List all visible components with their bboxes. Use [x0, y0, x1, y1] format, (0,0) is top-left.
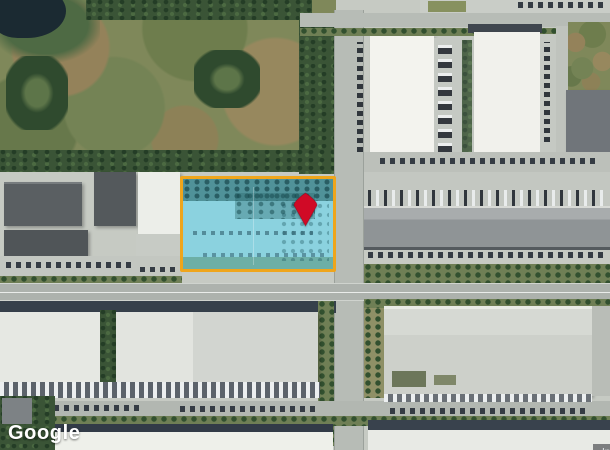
tree-clump	[6, 56, 68, 130]
loading-dock-trailers	[384, 394, 592, 402]
strip-warehouse-roof	[364, 206, 610, 250]
warehouse-roof	[370, 36, 434, 156]
docked-trucks-row	[368, 190, 604, 206]
roof-stain	[434, 375, 456, 385]
parked-cars-row	[390, 408, 590, 414]
parked-cars-column	[544, 42, 550, 142]
white-roof-building	[138, 172, 180, 234]
tree-column	[462, 40, 472, 154]
docked-trucks	[438, 44, 452, 152]
grass-verge	[364, 264, 610, 283]
parked-cars-row	[368, 252, 606, 258]
map-pin[interactable]	[292, 192, 319, 227]
satellite-map[interactable]: Google Imagery ©2025 Airbus, Maxar Techn…	[0, 0, 610, 450]
parked-cars-row	[518, 2, 608, 8]
warehouse-roof	[474, 32, 540, 156]
small-gray-roof	[2, 398, 32, 424]
gray-roof-building	[566, 90, 610, 156]
parked-cars-row	[180, 406, 320, 412]
parked-cars-row	[380, 158, 595, 164]
dark-roof-building	[4, 230, 88, 256]
attribution-bar: Imagery ©2025 Airbus, Maxar Technologies	[593, 444, 610, 450]
warehouse-roof	[384, 306, 592, 396]
dark-roof-building	[4, 182, 82, 226]
scrub-lot	[568, 22, 610, 90]
dark-roof-building	[94, 172, 136, 226]
parcel-lot-seam	[253, 187, 254, 265]
warehouse-roof	[55, 432, 333, 450]
parked-cars-row	[140, 267, 180, 272]
tree-alley	[100, 310, 116, 388]
warehouse-roof	[0, 312, 100, 382]
east-apron	[592, 306, 610, 396]
east-west-road-top	[300, 13, 610, 27]
ne-green-patch	[428, 1, 466, 12]
parked-cars-row	[6, 262, 132, 268]
warehouse-roof	[116, 312, 318, 390]
google-logo[interactable]: Google	[8, 422, 81, 445]
roof-stain	[392, 371, 426, 387]
tree-row-top	[86, 0, 312, 20]
warehouse-roof	[368, 430, 610, 450]
tree-clump	[194, 50, 260, 108]
parked-cars-column	[357, 42, 363, 152]
road-verge-south	[364, 308, 386, 398]
tree-band-field-south	[0, 150, 337, 172]
